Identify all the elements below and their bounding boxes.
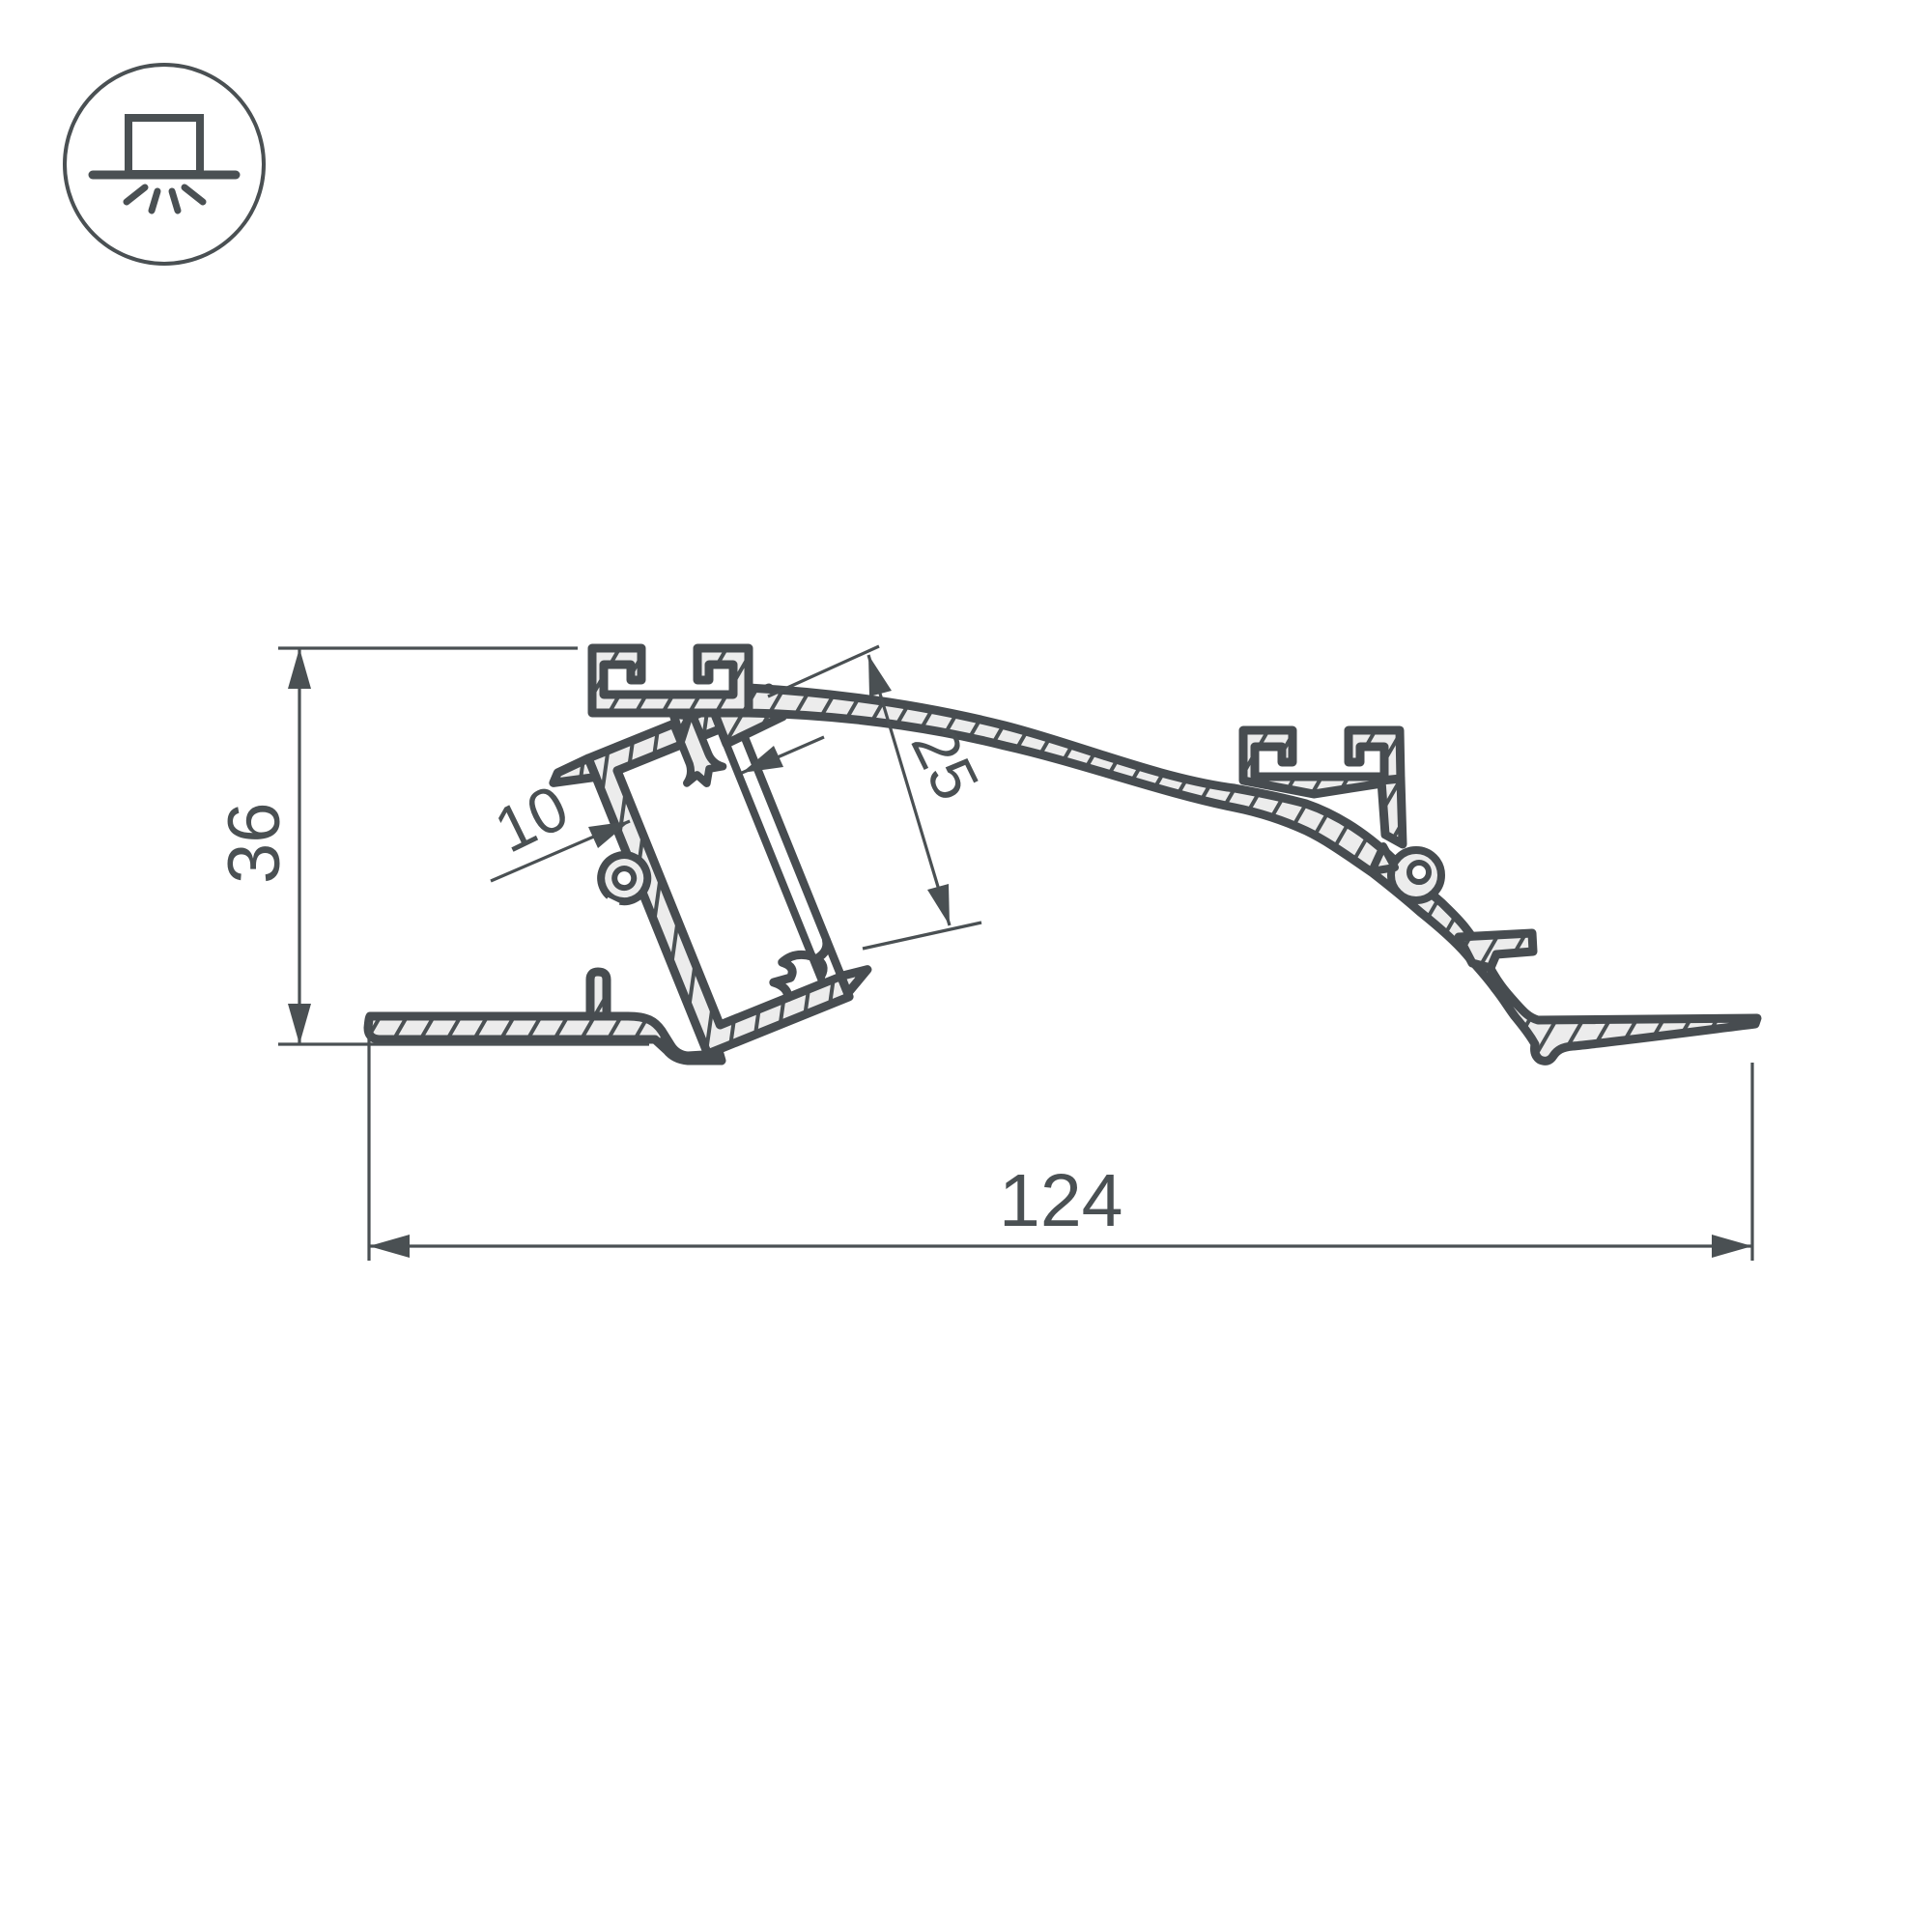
svg-text:36: 36 (213, 802, 296, 884)
svg-text:124: 124 (999, 1159, 1122, 1242)
